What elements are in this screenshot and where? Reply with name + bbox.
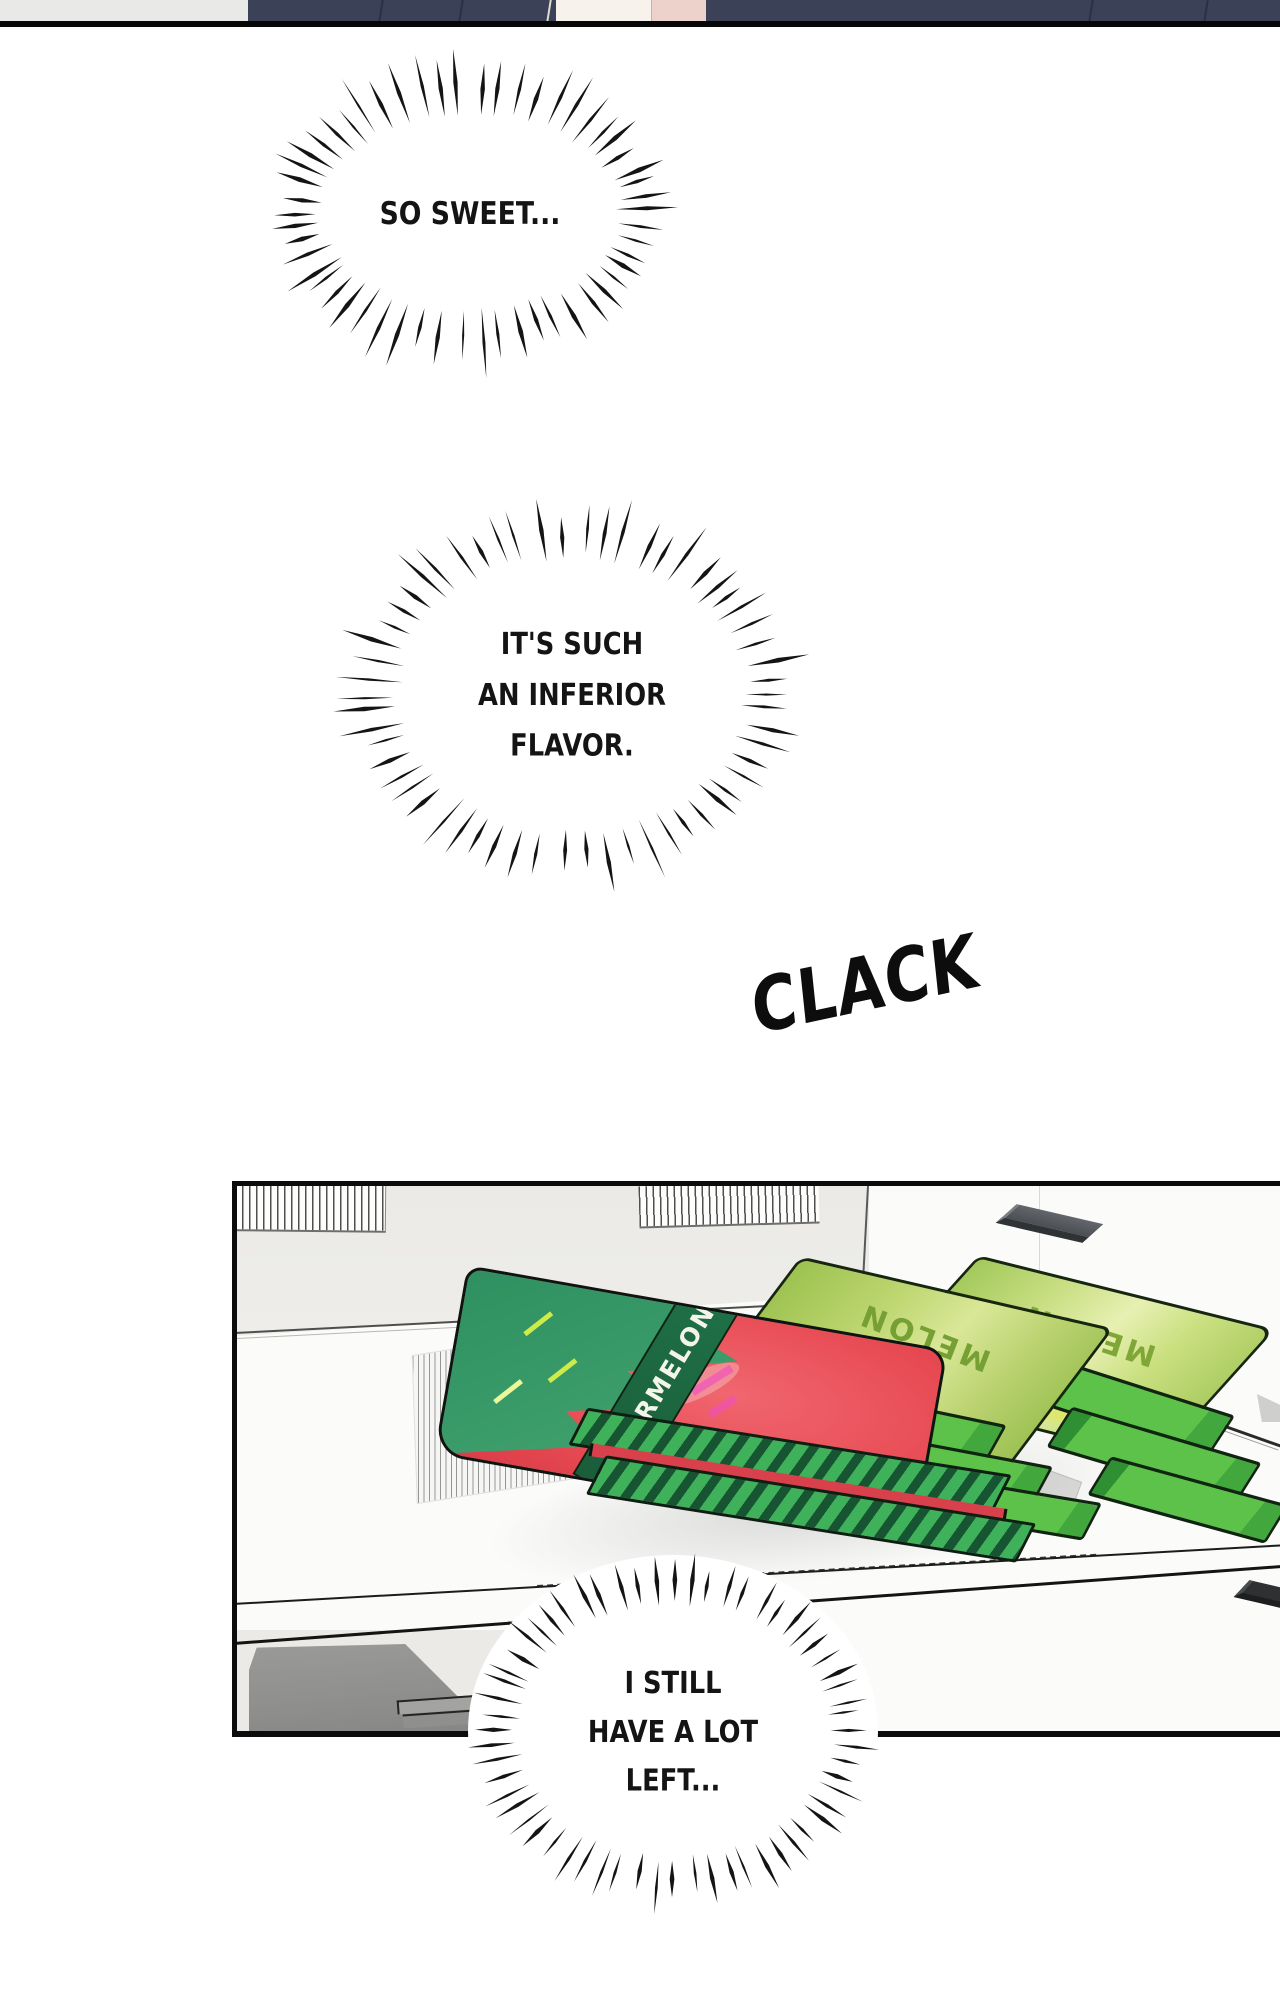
bubble-line: SO SWEET... [341, 192, 599, 233]
shirt-shoulder-shape [248, 0, 1280, 21]
speech-bubble-a-lot-left: I STILL HAVE A LOT LEFT... [544, 1659, 802, 1805]
collar-seam-line [651, 0, 652, 21]
bubble-line: FLAVOR. [443, 720, 701, 771]
drawer-rim-corner [1257, 1394, 1280, 1422]
neck-skin-shape [652, 0, 706, 21]
wrapper-pink-glint [708, 1395, 738, 1418]
bubble-line: IT'S SUCH [443, 618, 701, 669]
collar-shape [556, 0, 652, 21]
vent-grille-top-center [638, 1181, 819, 1228]
speech-bubble-so-sweet: SO SWEET... [341, 192, 599, 233]
panel-divider-bar [0, 21, 1280, 27]
vent-grille-top-left [235, 1183, 386, 1233]
bubble-line: LEFT... [544, 1756, 802, 1805]
speech-bubble-inferior-flavor: IT'S SUCH AN INFERIOR FLAVOR. [443, 618, 701, 770]
bubble-line: AN INFERIOR [443, 669, 701, 720]
previous-panel-sliver [0, 0, 1280, 21]
bubble-line: HAVE A LOT [544, 1707, 802, 1756]
sfx-clack: CLACK [736, 915, 994, 1054]
freezer-handle-top [996, 1204, 1104, 1243]
bubble-line: I STILL [544, 1659, 802, 1708]
